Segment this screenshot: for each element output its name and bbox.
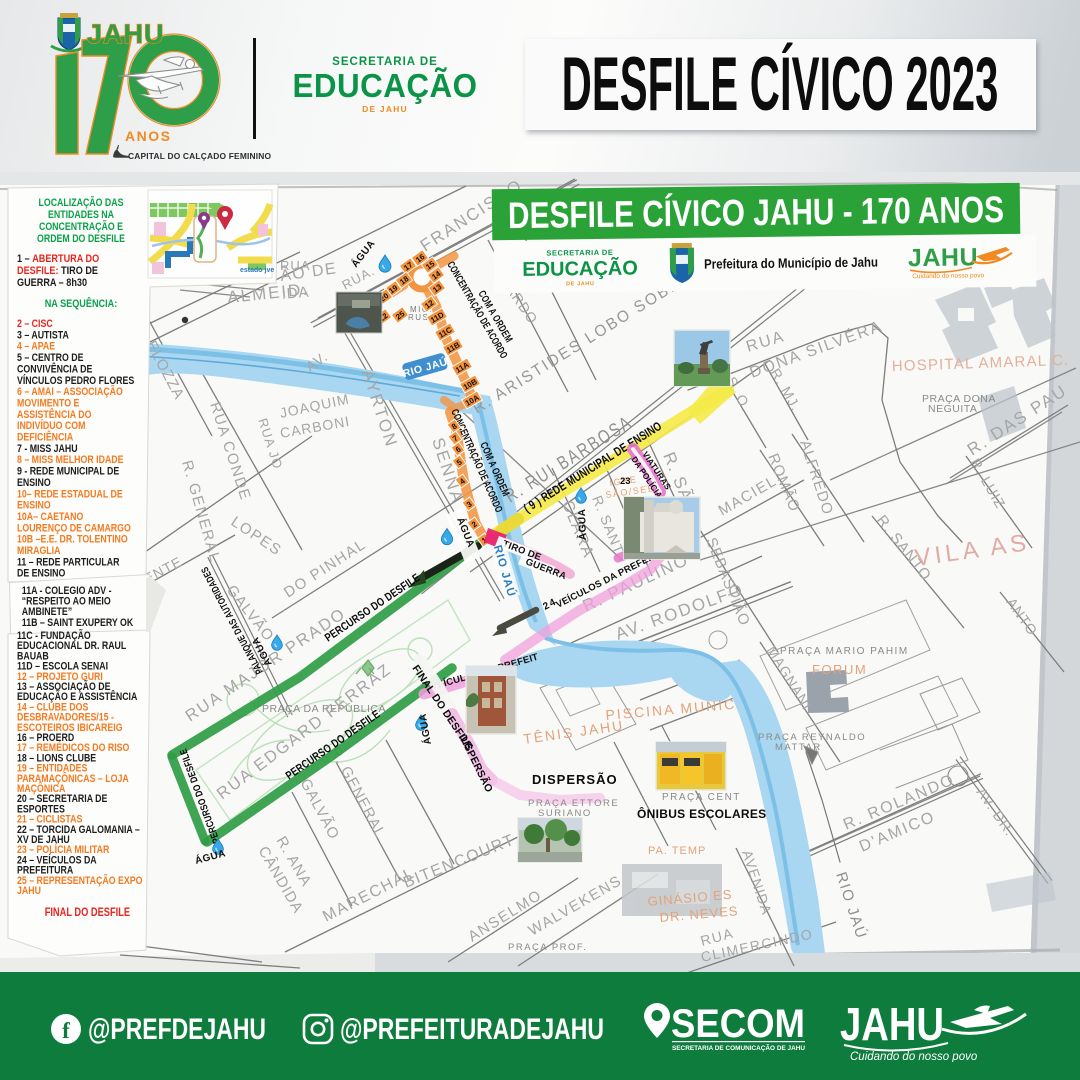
svg-text:estado jve: estado jve (240, 267, 274, 274)
svg-text:f: f (62, 1018, 70, 1043)
svg-text:ENTIDADES NA: ENTIDADES NA (48, 209, 114, 221)
svg-text:CONCENTRAÇÃO E: CONCENTRAÇÃO E (39, 221, 123, 233)
svg-text:Cuidando do nosso povo: Cuidando do nosso povo (850, 1051, 978, 1062)
svg-text:Prefeitura do Município de Jah: Prefeitura do Município de Jahu (704, 255, 878, 272)
svg-text:SECOM: SECOM (671, 1002, 805, 1046)
svg-text:DE JAHU: DE JAHU (566, 281, 594, 287)
svg-text:ANOS: ANOS (125, 128, 171, 144)
svg-text:DE ENSINO: DE ENSINO (17, 568, 66, 580)
svg-text:2 – CISC: 2 – CISC (17, 318, 53, 330)
svg-text:4 – APAE: 4 – APAE (17, 341, 55, 353)
svg-text:23: 23 (620, 476, 631, 487)
svg-text:ENSINO: ENSINO (17, 500, 51, 512)
svg-text:ENSINO: ENSINO (17, 477, 51, 489)
svg-text:PRAÇA PROF.: PRAÇA PROF. (508, 942, 587, 953)
svg-text:MATTAR: MATTAR (775, 742, 822, 753)
svg-text:1 – ABERTURA DO: 1 – ABERTURA DO (17, 253, 99, 265)
svg-text:@PREFEITURADEJAHU: @PREFEITURADEJAHU (340, 1013, 604, 1046)
svg-text:NA SEQUÊNCIA:: NA SEQUÊNCIA: (45, 296, 118, 310)
svg-text:RUA: RUA (280, 258, 310, 273)
svg-text:Cuidando do nosso povo: Cuidando do nosso povo (912, 272, 984, 280)
svg-text:DISPERSÃO: DISPERSÃO (532, 772, 618, 787)
svg-text:SECRETARIA DE: SECRETARIA DE (546, 248, 613, 258)
svg-text:SECRETARIA DE COMUNICAÇÃO DE J: SECRETARIA DE COMUNICAÇÃO DE JAHU (672, 1043, 805, 1052)
svg-text:JAHU: JAHU (840, 998, 944, 1050)
svg-text:8 – MISS MELHOR IDADE: 8 – MISS MELHOR IDADE (17, 454, 124, 466)
svg-text:NEGUITA: NEGUITA (928, 403, 977, 415)
svg-text:11B – SAINT EXUPERY OK: 11B – SAINT EXUPERY OK (22, 617, 134, 629)
svg-text:@PREFDEJAHU: @PREFDEJAHU (88, 1013, 266, 1046)
svg-text:ASSISTÊNCIA DO: ASSISTÊNCIA DO (17, 408, 92, 421)
svg-text:MIRAGLIA: MIRAGLIA (17, 545, 60, 557)
svg-text:ÔNIBUS ESCOLARES: ÔNIBUS ESCOLARES (637, 806, 766, 821)
svg-text:6 – AMAI – ASSOCIAÇÃO: 6 – AMAI – ASSOCIAÇÃO (17, 386, 123, 398)
svg-text:FINAL DO DESFILE: FINAL DO DESFILE (45, 906, 130, 919)
svg-text:FORUM: FORUM (812, 662, 867, 677)
svg-text:DEFICIÊNCIA: DEFICIÊNCIA (17, 431, 73, 444)
svg-text:CONVIVÊNCIA DE: CONVIVÊNCIA DE (17, 362, 93, 375)
svg-text:GUERRA – 8h30: GUERRA – 8h30 (17, 277, 87, 289)
svg-text:JAHU: JAHU (17, 885, 41, 897)
svg-text:PA. TEMP: PA. TEMP (648, 845, 706, 857)
svg-text:PRAÇA MARIO PAHIM: PRAÇA MARIO PAHIM (780, 646, 909, 657)
svg-text:ORDEM DO DESFILE: ORDEM DO DESFILE (37, 233, 125, 245)
svg-text:DESFILE CÍVICO JAHU - 170 ANOS: DESFILE CÍVICO JAHU - 170 ANOS (508, 189, 1004, 236)
svg-text:ÁGUA: ÁGUA (575, 508, 589, 540)
svg-text:CAPITAL DO CALÇADO FEMININO: CAPITAL DO CALÇADO FEMININO (128, 151, 272, 161)
svg-text:PRAÇA CENT: PRAÇA CENT (662, 792, 741, 803)
svg-text:LOURENÇO DE CAMARGO: LOURENÇO DE CAMARGO (17, 522, 131, 534)
svg-text:EDUCAÇÃO: EDUCAÇÃO (522, 256, 638, 280)
svg-text:DESFILE: TIRO DE: DESFILE: TIRO DE (17, 265, 98, 277)
svg-text:LOCALIZAÇÃO DAS: LOCALIZAÇÃO DAS (38, 197, 123, 209)
svg-text:JAHU: JAHU (87, 19, 165, 49)
